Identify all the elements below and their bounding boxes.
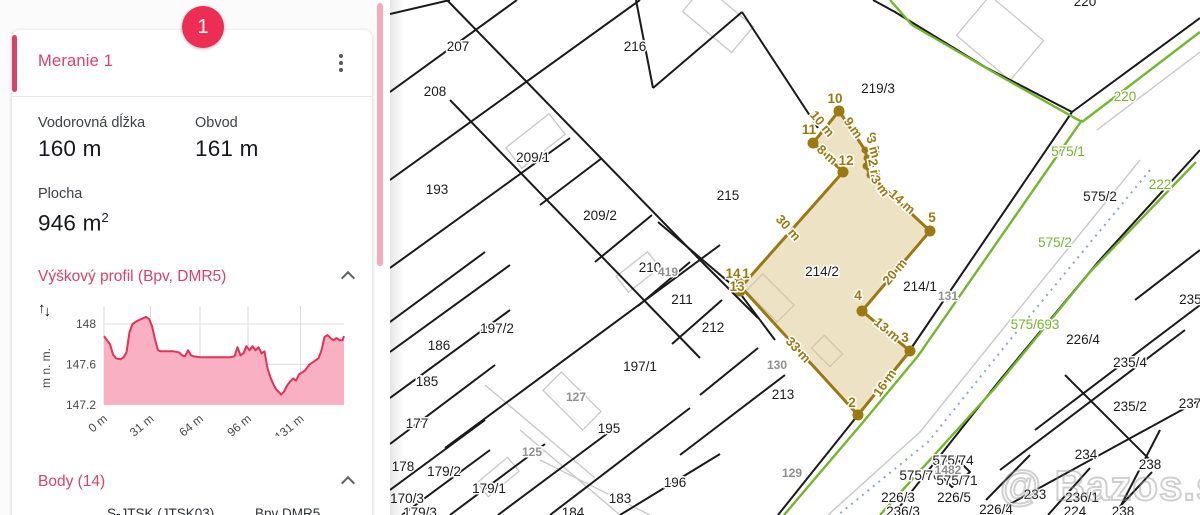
building-outline — [956, 0, 1043, 80]
vertex-number-label: 12 — [838, 153, 853, 168]
area-label: Plocha — [38, 186, 82, 202]
parcel-label: 179/1 — [472, 481, 506, 496]
building-number-label: 419 — [658, 265, 678, 279]
kebab-menu-icon[interactable] — [332, 52, 350, 74]
profile-chart-svg: 148147.6147.20 m31 m64 m96 m131 mm n. m. — [36, 296, 372, 436]
parcel-label: 224 — [1064, 504, 1087, 515]
parcel-label: 226/3 — [881, 490, 915, 505]
horizontal-length-value: 160 m — [38, 136, 102, 162]
vertex-number-label: 2 — [848, 395, 856, 410]
parcel-label: 219/3 — [861, 81, 895, 96]
parcel-label: 226/4 — [979, 502, 1013, 515]
body-collapse-chevron-icon[interactable] — [342, 475, 354, 487]
green-parcel-label: 575/1 — [1051, 144, 1085, 159]
green-parcel-label: 575/2 — [1038, 235, 1072, 250]
parcel-label: 234 — [1075, 447, 1098, 462]
parcel-label: 179/2 — [427, 464, 461, 479]
perimeter-label: Obvod — [195, 115, 238, 131]
building-number-label: 125 — [522, 445, 542, 459]
parcel-boundary — [498, 424, 620, 515]
parcel-label: 226/4 — [1066, 332, 1100, 347]
parcel-boundary — [390, 0, 450, 14]
parcel-label: 238 — [1139, 457, 1162, 472]
parcel-label: 195 — [598, 421, 621, 436]
green-parcel-label: 220 — [1114, 89, 1137, 104]
svg-text:96 m: 96 m — [224, 412, 253, 436]
map-svg: 207208216219/3193209/1215209/22102112122… — [390, 0, 1200, 515]
parcel-label: 208 — [424, 84, 447, 99]
vertex-marker[interactable] — [905, 346, 916, 357]
parcel-label: 235/2 — [1113, 399, 1147, 414]
area-value: 946 m2 — [38, 210, 109, 237]
parcel-label: 207 — [447, 39, 470, 54]
green-parcel-label: 575/693 — [1011, 317, 1060, 332]
parcel-label: 183 — [609, 491, 632, 506]
svg-text:148: 148 — [76, 317, 96, 331]
vertex-number-label: 10 — [827, 91, 842, 106]
parcel-boundary — [450, 100, 700, 358]
parcel-label: 235/4 — [1113, 355, 1147, 370]
parcel-label: 197/2 — [480, 321, 514, 336]
measurement-title: Meranie 1 — [38, 52, 113, 71]
parcel-label: 186 — [428, 338, 451, 353]
parcel-label: 209/2 — [583, 208, 617, 223]
vertex-marker[interactable] — [808, 138, 819, 149]
parcel-label: 179/3 — [403, 505, 437, 515]
parcel-label: 214/2 — [805, 264, 839, 279]
vertex-number-label: 4 — [854, 288, 862, 303]
parcel-boundary — [680, 375, 785, 455]
green-parcel-label: 222 — [1149, 177, 1172, 192]
parcel-label: 193 — [426, 182, 449, 197]
profile-section-title: Výškový profil (Bpv, DMR5) — [38, 268, 226, 286]
parcel-boundary — [447, 0, 702, 262]
parcel-label: 235/1 — [1179, 292, 1200, 307]
parcel-label: 185 — [416, 374, 439, 389]
building-number-label: 1482 — [935, 463, 962, 477]
parcel-label: 212 — [702, 320, 725, 335]
parcel-label: 177 — [406, 416, 429, 431]
measure-app: 1 Meranie 1 Vodorovná dĺžka 160 m Obvod … — [0, 0, 1200, 515]
building-number-label: 131 — [938, 289, 958, 303]
vertex-marker[interactable] — [857, 306, 868, 317]
building-number-label: 130 — [767, 358, 787, 372]
vertex-marker[interactable] — [853, 410, 864, 421]
parcel-boundary — [700, 348, 758, 395]
road-centerline — [1097, 52, 1200, 130]
parcel-label: 196 — [664, 475, 687, 490]
parcel-label: 211 — [671, 292, 693, 307]
svg-text:147.6: 147.6 — [66, 357, 96, 371]
parcel-label: 215 — [717, 188, 740, 203]
parcel-label: 213 — [772, 387, 795, 402]
parcel-label: 184 — [562, 505, 585, 515]
svg-text:31 m: 31 m — [127, 412, 156, 436]
perimeter-value: 161 m — [195, 136, 259, 162]
measurement-panel: 1 Meranie 1 Vodorovná dĺžka 160 m Obvod … — [0, 0, 375, 515]
measurement-card: 1 Meranie 1 Vodorovná dĺžka 160 m Obvod … — [12, 30, 372, 515]
measurement-marker-badge: 1 — [182, 6, 224, 48]
elevation-profile-chart: 148147.6147.20 m31 m64 m96 m131 mm n. m. — [36, 296, 372, 436]
body-table-col1: S-JTSK (JTSK03) — [107, 506, 214, 515]
parcel-label: 214/1 — [903, 279, 937, 294]
panel-scrollbar[interactable] — [377, 3, 383, 266]
accent-bar — [12, 35, 17, 92]
building-outline — [683, 0, 754, 53]
svg-text:0 m: 0 m — [86, 412, 110, 436]
svg-text:131 m: 131 m — [272, 412, 307, 436]
horizontal-length-label: Vodorovná dĺžka — [38, 115, 145, 131]
vertex-number-label: 5 — [928, 210, 936, 225]
profile-collapse-chevron-icon[interactable] — [342, 270, 354, 282]
parcel-label: 178 — [392, 459, 415, 474]
cadastre-green-line — [1082, 32, 1200, 122]
parcel-label: 236/1 — [1065, 490, 1099, 505]
body-table-header: S-JTSK (JTSK03) Bpv DMR5 — [12, 506, 372, 515]
building-number-label: 129 — [782, 466, 802, 480]
parcel-label: 238 — [1112, 504, 1135, 515]
parcel-boundary — [390, 420, 485, 490]
vertex-marker[interactable] — [834, 106, 845, 117]
vertex-marker[interactable] — [838, 167, 849, 178]
vertex-number-label: 13 — [729, 279, 745, 294]
parcel-boundary — [390, 365, 495, 444]
vertex-marker[interactable] — [925, 226, 936, 237]
parcel-label: 197/1 — [623, 359, 657, 374]
svg-text:m n. m.: m n. m. — [39, 348, 53, 388]
map-canvas[interactable]: 207208216219/3193209/1215209/22102112122… — [390, 0, 1200, 515]
svg-text:147.2: 147.2 — [66, 398, 96, 412]
parcel-label: 236/3 — [886, 504, 920, 515]
parcel-boundary — [390, 252, 485, 322]
body-section-title: Body (14) — [38, 473, 105, 491]
building-number-label: 127 — [566, 390, 586, 404]
parcel-boundary — [540, 158, 602, 205]
parcel-label: 209/1 — [516, 150, 550, 165]
parcel-label: 170/3 — [390, 491, 424, 506]
parcel-label: 226/5 — [937, 490, 971, 505]
parcel-label: 575/2 — [1083, 189, 1117, 204]
parcel-label: 220 — [1074, 0, 1097, 9]
parcel-label: 233 — [1024, 487, 1047, 502]
svg-text:64 m: 64 m — [176, 412, 205, 436]
body-table-col2: Bpv DMR5 — [255, 506, 320, 515]
parcel-boundary — [742, 12, 818, 128]
parcel-label: 237 — [1179, 396, 1200, 411]
parcel-label: 216 — [624, 39, 647, 54]
